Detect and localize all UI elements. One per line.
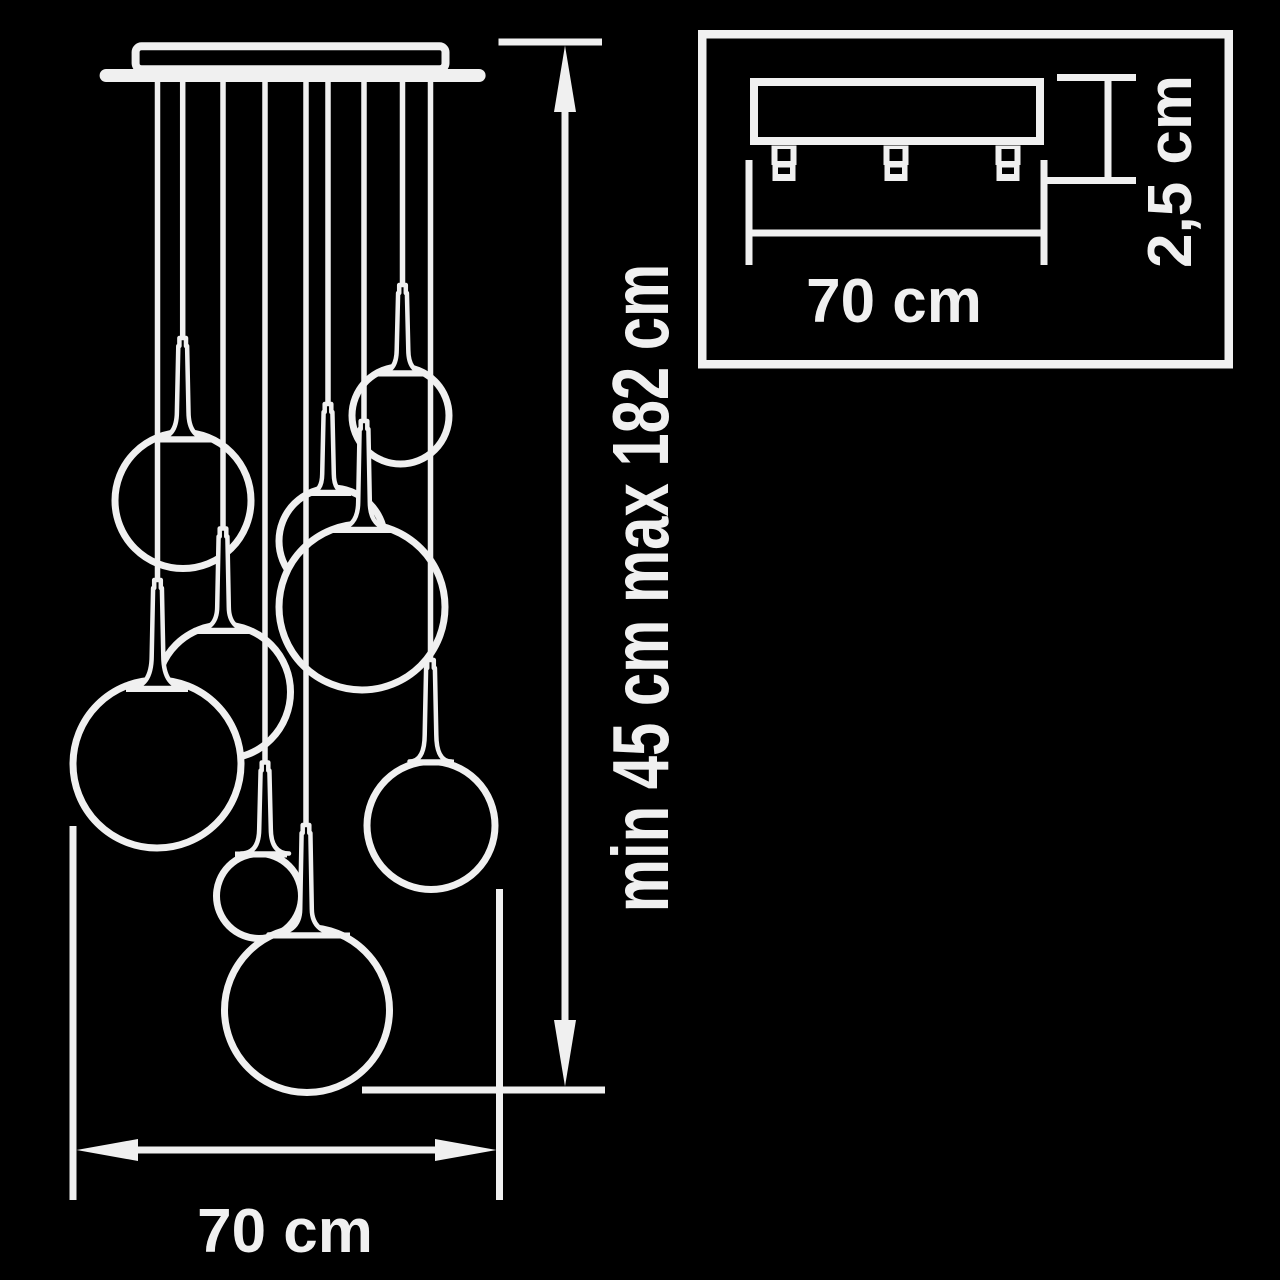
svg-text:70 cm: 70 cm [806, 267, 982, 336]
svg-text:min 45 cm max 182 cm: min 45 cm max 182 cm [596, 264, 685, 913]
svg-text:2,5 cm: 2,5 cm [1136, 75, 1205, 268]
svg-text:70 cm: 70 cm [197, 1197, 373, 1266]
